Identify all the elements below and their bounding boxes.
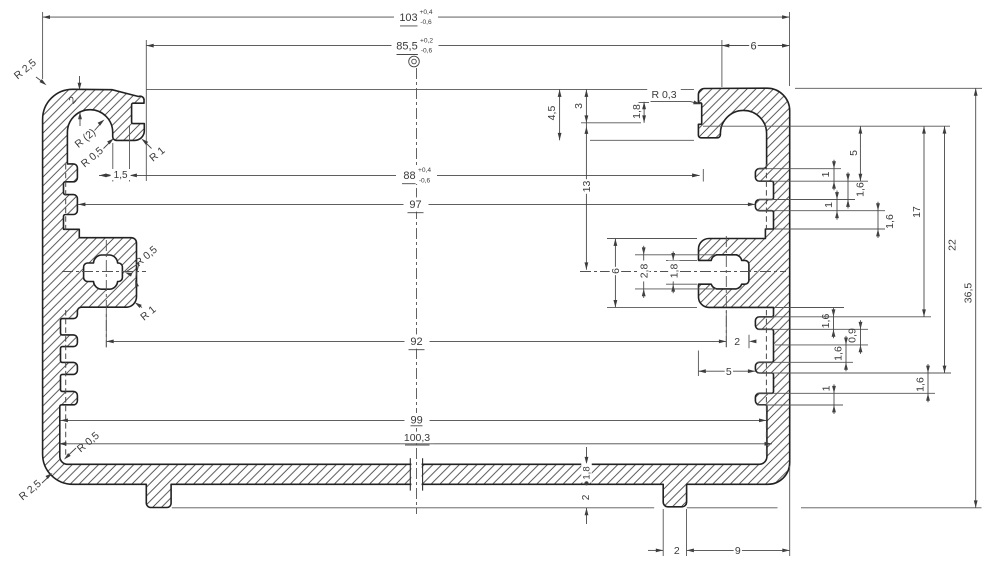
svg-text:1,8: 1,8	[582, 466, 593, 479]
svg-text:1: 1	[823, 202, 835, 208]
svg-text:2: 2	[581, 494, 592, 500]
svg-text:97: 97	[409, 199, 421, 211]
svg-text:1,6: 1,6	[820, 314, 832, 329]
svg-text:9: 9	[735, 545, 741, 557]
svg-text:+0,2: +0,2	[420, 38, 433, 45]
svg-text:R 0,3: R 0,3	[651, 89, 676, 101]
svg-text:-0,6: -0,6	[421, 48, 433, 55]
svg-text:100,3: 100,3	[404, 432, 430, 444]
svg-text:103: 103	[399, 12, 417, 24]
svg-text:6: 6	[750, 40, 756, 52]
svg-text:1: 1	[821, 385, 833, 391]
svg-text:+0,4: +0,4	[419, 9, 432, 16]
svg-text:22: 22	[947, 239, 959, 251]
svg-text:85,5: 85,5	[396, 40, 417, 52]
svg-text:1,6: 1,6	[884, 214, 896, 229]
svg-text:3: 3	[573, 103, 585, 109]
svg-text:2,8: 2,8	[638, 264, 650, 279]
svg-text:17: 17	[911, 206, 923, 218]
svg-text:36,5: 36,5	[963, 283, 975, 304]
svg-text:1,8: 1,8	[631, 104, 643, 119]
svg-text:2: 2	[674, 545, 680, 557]
svg-text:6: 6	[610, 268, 622, 274]
svg-text:99: 99	[410, 415, 422, 427]
svg-text:+0,4: +0,4	[418, 167, 431, 174]
svg-text:1,5: 1,5	[114, 170, 128, 181]
svg-text:88: 88	[403, 170, 415, 182]
svg-text:1,6: 1,6	[915, 377, 927, 392]
svg-text:13: 13	[581, 181, 593, 193]
svg-text:2: 2	[734, 336, 740, 348]
svg-text:4,5: 4,5	[546, 106, 558, 121]
svg-text:5: 5	[848, 150, 860, 156]
svg-text:1,6: 1,6	[833, 346, 845, 361]
svg-text:0,9: 0,9	[847, 328, 859, 343]
svg-text:1,6: 1,6	[855, 182, 867, 197]
svg-text:92: 92	[410, 336, 422, 348]
svg-text:1: 1	[820, 171, 832, 177]
svg-text:-0,6: -0,6	[420, 19, 432, 26]
svg-text:1,8: 1,8	[668, 264, 680, 279]
svg-text:-0,6: -0,6	[419, 178, 431, 185]
svg-text:5: 5	[726, 366, 732, 378]
